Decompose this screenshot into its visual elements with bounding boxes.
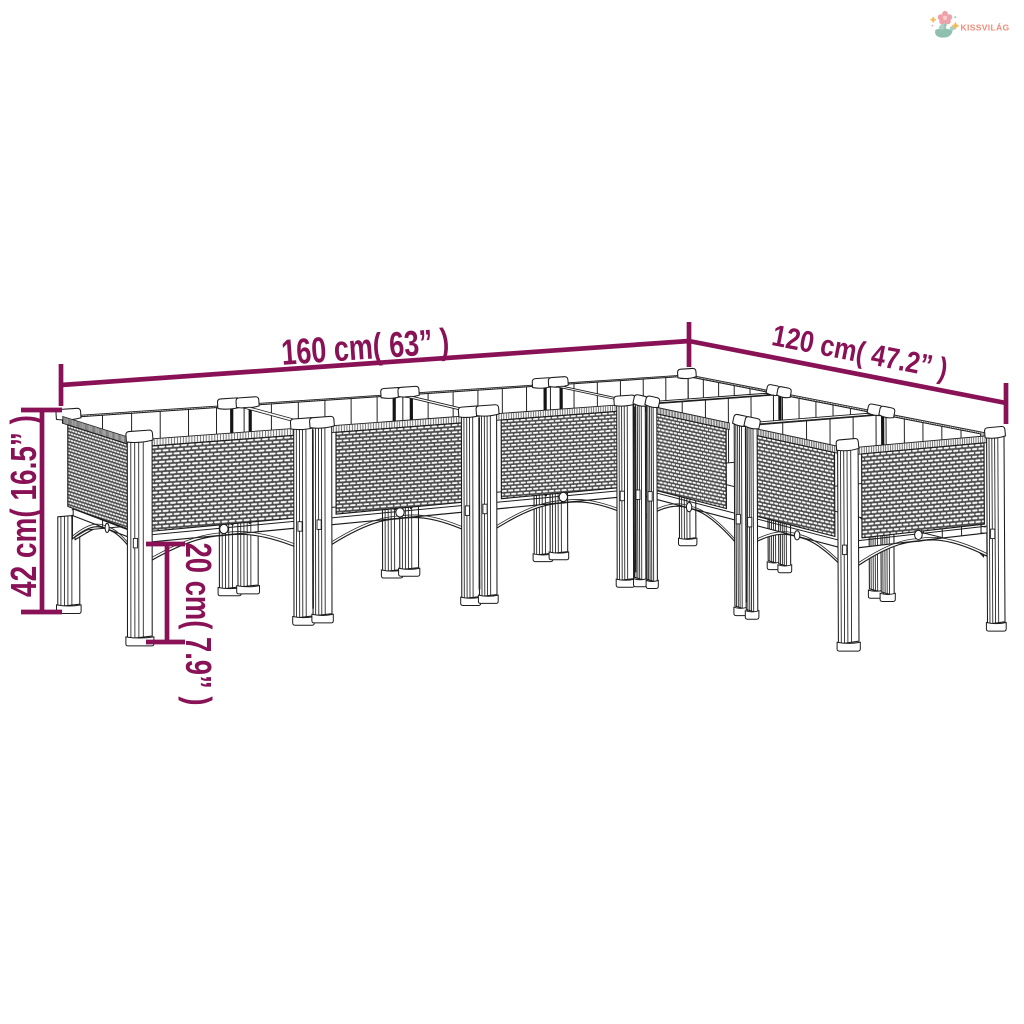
svg-text:20 cm( 7.9” ): 20 cm( 7.9” ): [178, 543, 219, 706]
svg-text:42 cm( 16.5” ): 42 cm( 16.5” ): [3, 415, 44, 597]
svg-text:KISSVILÁG: KISSVILÁG: [961, 22, 1010, 32]
